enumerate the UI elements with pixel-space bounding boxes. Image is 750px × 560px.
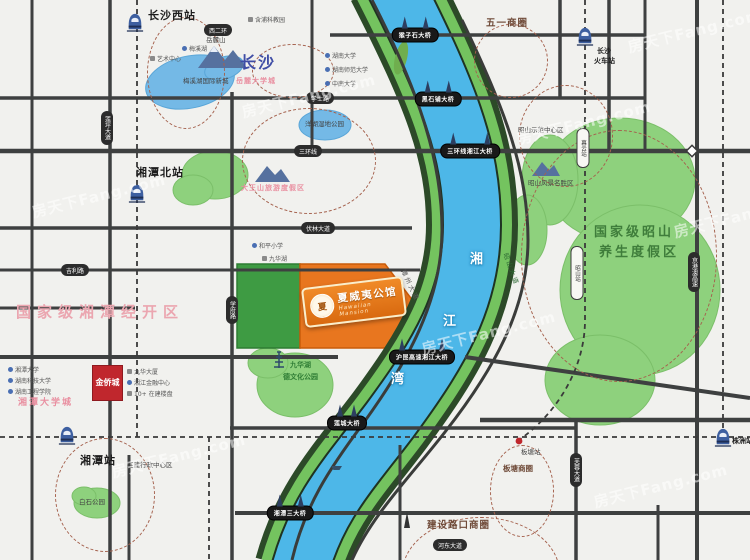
map-text-label: 梅溪湖国际新城 [183,78,229,85]
project-seal-logo: 夏 [309,293,336,320]
road-label: 三环线 [294,145,322,157]
poi-text: 和平小学 [259,241,283,250]
train-station-icon [128,183,146,207]
map-text-label: 长沙 [240,54,276,72]
map-text-label: 国家级湘潭经开区 [16,304,184,321]
poi-text: 梅溪湖 [189,44,207,53]
poi-icon [127,380,132,385]
poi-text: 艺术中心 [157,54,181,63]
jinqiaocheng-label: 金侨城 [96,379,120,388]
map-text-label: 板塘商圈 [503,465,533,474]
map-text-label: 长沙西站 [148,10,196,23]
location-map-canvas[interactable]: 潭州大道昭山大道 西二环学士路三环线伏林大道吉利路莲坪大道学府路芙蓉大道河东大道… [0,0,750,560]
poi-text: 湖南大学 [332,51,356,60]
river-name-char: 江 [443,310,456,329]
poi-icon [150,56,155,61]
poi-icon [325,67,330,72]
poi-icon [127,391,132,396]
map-text-label: 九华湖 [290,361,311,369]
poi-label: 艺术中心 [150,54,181,63]
poi-icon [8,378,13,383]
bridge-label: 湘潭三大桥 [267,506,314,521]
map-text-label: 洋湖湿地公园 [305,121,344,128]
map-text-label: 火车站 [594,57,615,65]
map-text-label: 在建行政中心区 [127,462,173,469]
bridge-label: 莲城大桥 [327,416,367,431]
poi-label: 湖南大学 [325,51,356,60]
map-text-label: 昭山示范中心区 [518,127,564,134]
map-text-label: 长沙 [597,47,611,55]
jinqiaocheng-landmark: 金侨城 [92,365,123,401]
map-text-label: 昭山风景名胜区 [528,180,574,187]
road-label: 京港澳高速 [688,252,700,292]
road-label: 河东大道 [433,539,467,551]
poi-label: 湖南工程学院 [8,387,51,396]
poi-label: 九华大厦 [127,367,158,376]
river-name-char: 湘 [470,248,483,267]
poi-icon [127,369,132,374]
poi-label: 湘江金融中心 [127,378,170,387]
poi-label: 湖南科技大学 [8,376,51,385]
poi-icon [248,17,253,22]
map-text-label: 国家级昭山 [594,226,674,241]
poi-label: 梅溪湖 [182,44,207,53]
poi-icon [8,367,13,372]
train-station-icon [58,425,76,449]
map-text-label: 岳麓大学城 [236,77,276,85]
road-label: 学府路 [226,296,238,324]
bridge-label: 三环线湘江大桥 [440,144,500,159]
poi-text: 湘江金融中心 [134,378,170,387]
poi-icon [325,53,330,58]
poi-text: 湖南科技大学 [15,376,51,385]
poi-label: 湘潭大学 [8,365,39,374]
train-station-icon [126,12,144,36]
map-text-label: 湘潭大学城 [18,398,73,408]
poi-text: 湘潭大学 [15,365,39,374]
poi-icon [8,389,13,394]
road-label: 吉利路 [61,264,89,276]
poi-label: 10+ 在建楼盘 [127,389,173,398]
poi-icon [325,81,330,86]
map-text-label: 白石公园 [79,499,105,506]
poi-icon [182,46,187,51]
train-station-icon [714,427,732,451]
poi-text: 九华大厦 [134,367,158,376]
poi-text: 湖南师范大学 [332,65,368,74]
poi-text: 湖南工程学院 [15,387,51,396]
poi-text: 中南大学 [332,79,356,88]
poi-label: 九华湖 [262,254,287,263]
map-text-label: 岳麓山 [206,37,226,44]
poi-text: 10+ 在建楼盘 [134,389,173,398]
poi-text: 含浦科教园 [255,15,285,24]
map-text-label: 大王山旅游度假区 [241,184,305,192]
rail-station-capsule: 昭山站 [571,246,584,300]
poi-label: 和平小学 [252,241,283,250]
poi-text: 九华湖 [269,254,287,263]
business-circle [474,24,548,98]
poi-label: 中南大学 [325,79,356,88]
map-text-label: 德文化公园 [283,373,318,381]
map-text-label: 五一商圈 [486,19,528,30]
train-station-icon [576,26,594,50]
map-text-label: 板塘站 [521,449,541,456]
bantang-station-dot [516,438,523,445]
map-text-label: 养生度假区 [599,246,679,261]
map-text-label: 株洲站 [732,437,750,445]
poi-label: 湖南师范大学 [325,65,368,74]
road-label: 莲坪大道 [101,111,113,145]
road-label: 学士路 [306,92,334,104]
bridge-label: 猴子石大桥 [392,28,439,43]
poi-icon [252,243,257,248]
map-text-label: 建设路口商圈 [427,521,490,532]
road-label: 西二环 [204,24,232,36]
bridge-label: 沪昆高速湘江大桥 [389,350,455,365]
map-text-label: 湘潭站 [80,455,116,468]
rail-station-capsule: 暮云站 [577,128,590,168]
bridge-label: 黑石铺大桥 [415,92,462,107]
green-parcel [237,264,300,348]
poi-icon [262,256,267,261]
road-label: 伏林大道 [301,222,335,234]
road-label: 芙蓉大道 [570,453,582,487]
river-name-char: 湾 [391,368,404,387]
map-text-label: 湘潭北站 [136,167,184,180]
poi-label: 含浦科教园 [248,15,285,24]
